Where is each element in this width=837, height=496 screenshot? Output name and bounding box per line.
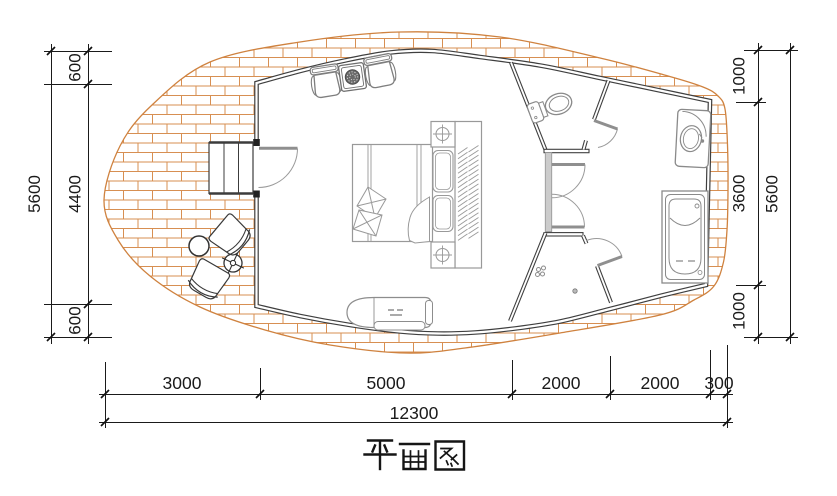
svg-text:1000: 1000 (730, 292, 749, 330)
svg-text:3000: 3000 (163, 373, 202, 393)
svg-text:600: 600 (66, 306, 85, 334)
svg-text:5600: 5600 (25, 175, 44, 213)
svg-text:2000: 2000 (641, 373, 680, 393)
svg-text:2000: 2000 (542, 373, 581, 393)
svg-text:1000: 1000 (730, 57, 749, 95)
svg-text:5000: 5000 (367, 373, 406, 393)
svg-text:600: 600 (66, 53, 85, 81)
svg-text:3600: 3600 (730, 175, 749, 213)
svg-text:4400: 4400 (66, 175, 85, 213)
svg-text:5600: 5600 (763, 175, 782, 213)
svg-text:300: 300 (704, 373, 733, 393)
svg-text:12300: 12300 (390, 403, 439, 423)
